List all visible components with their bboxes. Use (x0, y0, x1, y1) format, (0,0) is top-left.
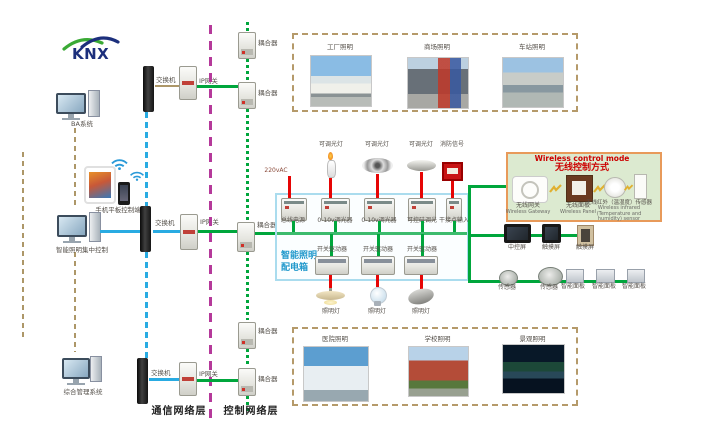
bus-stub (421, 221, 424, 232)
load-label: 可调光灯 (406, 142, 436, 149)
downlight-icon (362, 158, 393, 173)
smart-panel-icon (627, 269, 645, 283)
coupler-label: 耦合器 (258, 376, 288, 383)
load-label: 可调光灯 (362, 142, 392, 149)
photo-label: 景观照明 (502, 336, 563, 343)
mall-lighting-photo (407, 57, 469, 109)
switch-label: 交换机 (151, 370, 181, 377)
lamp-glow (324, 300, 337, 305)
coupler-icon (238, 322, 256, 349)
ac-power-label: 220vAC (264, 168, 288, 175)
computer-base (63, 241, 81, 243)
lamp-label: 照明灯 (363, 309, 391, 316)
ethernet-dashed-line (145, 112, 148, 206)
bus-stub (378, 221, 381, 232)
photo-label: 医院照明 (305, 336, 365, 343)
ethernet-line (100, 230, 140, 233)
station-lighting-photo (502, 57, 564, 108)
ip-gateway-icon (179, 66, 197, 100)
coupler-icon (238, 32, 256, 59)
gateway-ring (521, 181, 539, 199)
switch-driver-icon (315, 256, 349, 275)
computer-tower (89, 212, 101, 242)
sensor-label: 传感器 (487, 285, 527, 292)
network-switch-icon (137, 358, 148, 404)
wireless-sensor-remote-icon (634, 174, 647, 199)
ip-gateway-icon (180, 214, 198, 250)
ba-system-label: BA系统 (47, 121, 117, 128)
driver-label: 开关驱动器 (312, 247, 352, 254)
computer-base (67, 383, 85, 385)
ip-gateway-icon (179, 362, 197, 396)
touch-screen-icon (542, 224, 561, 243)
computer-screen (59, 217, 85, 235)
tablet-icon (84, 166, 116, 204)
network-switch-icon (140, 206, 151, 252)
ip-gateway-label: IP网关 (199, 371, 229, 378)
computer-screen (64, 360, 88, 377)
coupler-icon (238, 368, 256, 396)
bus-stub (453, 221, 456, 232)
factory-lighting-photo (310, 55, 372, 107)
computer-screen (58, 95, 84, 112)
panel-face (572, 181, 586, 195)
terminal-link-line (74, 128, 76, 205)
switch-driver-icon (361, 256, 395, 275)
lighting-control-label: 智能照明集中控制 (38, 247, 126, 254)
smart-panel-icon (566, 269, 584, 283)
lamp-line (329, 275, 332, 289)
ceiling-lamp-icon (407, 160, 436, 171)
screen-face (581, 229, 590, 242)
hospital-lighting-photo (303, 346, 369, 402)
flame-icon (328, 152, 333, 160)
tablet-screen (89, 172, 111, 198)
knx-bus-dotted-line (246, 59, 249, 82)
load-line (420, 172, 423, 198)
wireless-device-sublabel: Wireless Gateway (498, 210, 558, 216)
wireless-gateway-icon (512, 176, 548, 203)
desktop-computer-icon (57, 215, 87, 237)
lamp-line (376, 275, 379, 287)
photo-label: 工厂照明 (310, 44, 370, 51)
uplink-line (155, 85, 180, 87)
management-system-label: 综合管理系统 (48, 389, 118, 396)
knx-bus-dotted-line (246, 109, 249, 220)
wireless-title-zh: 无线控制方式 (506, 163, 658, 173)
power-line (288, 176, 291, 198)
photo-label: 车站照明 (502, 44, 562, 51)
smart-panel-icon (596, 269, 615, 283)
network-switch-icon (143, 66, 154, 112)
load-label: 可调光灯 (316, 142, 346, 149)
driver-label: 开关驱动器 (402, 247, 442, 254)
ip-gateway-label: IP网关 (200, 219, 230, 226)
computer-tower (88, 90, 100, 117)
fire-alarm-icon (442, 162, 463, 181)
landscape-lighting-photo (502, 344, 565, 394)
screen-face (545, 227, 558, 240)
photo-label: 商场照明 (407, 44, 467, 51)
lightning-icon (624, 183, 634, 193)
phone-screen (120, 185, 128, 201)
ethernet-dashed-line (145, 252, 148, 358)
knx-bus-line (197, 379, 238, 382)
knx-bus-line (198, 230, 237, 233)
smart-panel-label: 智能面板 (614, 284, 654, 291)
desktop-computer-icon (56, 93, 86, 114)
lamp-line (420, 275, 423, 289)
knx-bus-dotted-line (246, 22, 249, 32)
diagram-canvas: KNX BA系统 手机平板控制端 智能照明集中控制 综合管理系统 交换机 交换机 (0, 0, 715, 443)
wireless-panel-icon (566, 175, 593, 202)
wireless-sensor-icon (604, 177, 626, 198)
touch-screen-icon (577, 225, 594, 246)
bulb-base (374, 301, 381, 306)
knx-logo-text: KNX (72, 45, 109, 63)
coupler-label: 耦合器 (258, 328, 288, 335)
desktop-computer-icon (62, 358, 90, 379)
coupler-label: 耦合器 (258, 40, 288, 47)
screen-label: 触摸屏 (565, 245, 605, 252)
terminal-link-line (74, 252, 76, 352)
fire-alarm-display (447, 168, 458, 174)
central-screen-icon (504, 224, 531, 243)
pendant-lamp-icon (316, 291, 345, 300)
ethernet-line (153, 230, 180, 233)
load-line (329, 178, 332, 198)
computer-tower (90, 356, 102, 382)
driver-label: 开关驱动器 (358, 247, 398, 254)
bus-stub (334, 221, 337, 232)
wall-lamp-icon (407, 286, 436, 307)
communication-layer-label: 通信网络层 (148, 402, 210, 417)
knx-bus-dotted-line (246, 349, 249, 366)
screen-face (507, 227, 528, 240)
distribution-box-title: 配电箱 (281, 260, 308, 273)
load-line (376, 174, 379, 198)
smartphone-icon (118, 182, 130, 205)
bus-stub (292, 221, 295, 232)
coupler-label: 耦合器 (258, 90, 288, 97)
knx-bus-dotted-line (246, 252, 249, 320)
knx-bus-line (197, 85, 238, 88)
terminal-link-line (22, 152, 24, 338)
coupler-icon (237, 222, 255, 252)
lamp-label: 照明灯 (317, 309, 345, 316)
load-label: 消防信号 (437, 142, 467, 149)
lamp-label: 照明灯 (407, 309, 435, 316)
wireless-device-sublabel: Wireless infrared (Temperature and humid… (584, 206, 654, 223)
school-lighting-photo (408, 346, 469, 397)
lightning-icon (549, 183, 563, 195)
switch-driver-icon (404, 256, 438, 275)
load-line (451, 181, 454, 198)
candle-lamp-icon (327, 160, 336, 178)
control-layer-label: 控制网络层 (220, 402, 282, 417)
photo-label: 学校照明 (408, 336, 467, 343)
wifi-icon (129, 168, 145, 181)
ethernet-line (149, 378, 179, 381)
coupler-icon (238, 82, 256, 109)
